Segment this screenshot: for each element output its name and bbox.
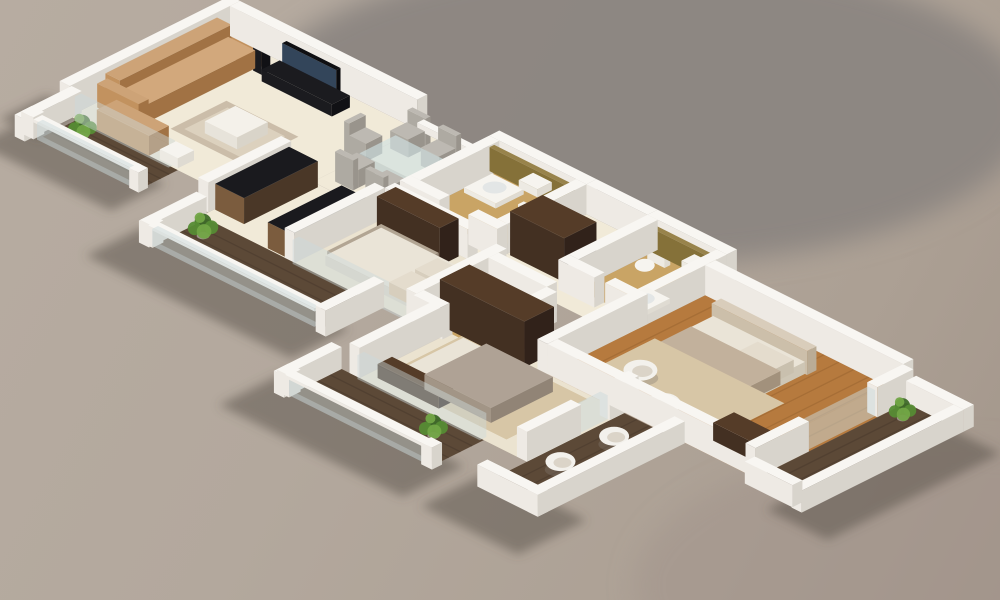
glass-wall-bedroom3-balcony-right-face bbox=[480, 413, 486, 440]
plant-bottom-balcony-foliage-3 bbox=[427, 425, 441, 439]
plant-master-balcony-foliage-3 bbox=[897, 408, 910, 421]
plant-master-balcony-foliage-4 bbox=[895, 397, 905, 407]
wall-mid-balcony-right-left-face bbox=[316, 306, 326, 337]
balcony-chair-2-seat bbox=[553, 457, 571, 467]
floor-plan-3d-render bbox=[0, 0, 1000, 600]
plant-mid-balcony-foliage-4 bbox=[195, 213, 206, 224]
shower-basin-bath1 bbox=[483, 182, 507, 194]
plant-bottom-balcony-foliage-4 bbox=[425, 414, 435, 424]
plant-mid-balcony-foliage-3 bbox=[197, 224, 212, 239]
wall-master-left-left-face bbox=[537, 339, 547, 374]
wall-bedroom3-right-lower-left-face bbox=[517, 427, 527, 462]
bedM-headboard-right-face bbox=[807, 346, 816, 375]
toilet-bowl-bath2 bbox=[635, 259, 655, 272]
screenshot-root bbox=[0, 0, 1000, 600]
dining-chair-5-back-left-face bbox=[344, 121, 349, 154]
dining-chair-3-back-right-face bbox=[353, 158, 358, 191]
balcony-chair-1-seat bbox=[607, 432, 625, 442]
wall-bath2-bottom-left-right-face bbox=[594, 272, 604, 307]
